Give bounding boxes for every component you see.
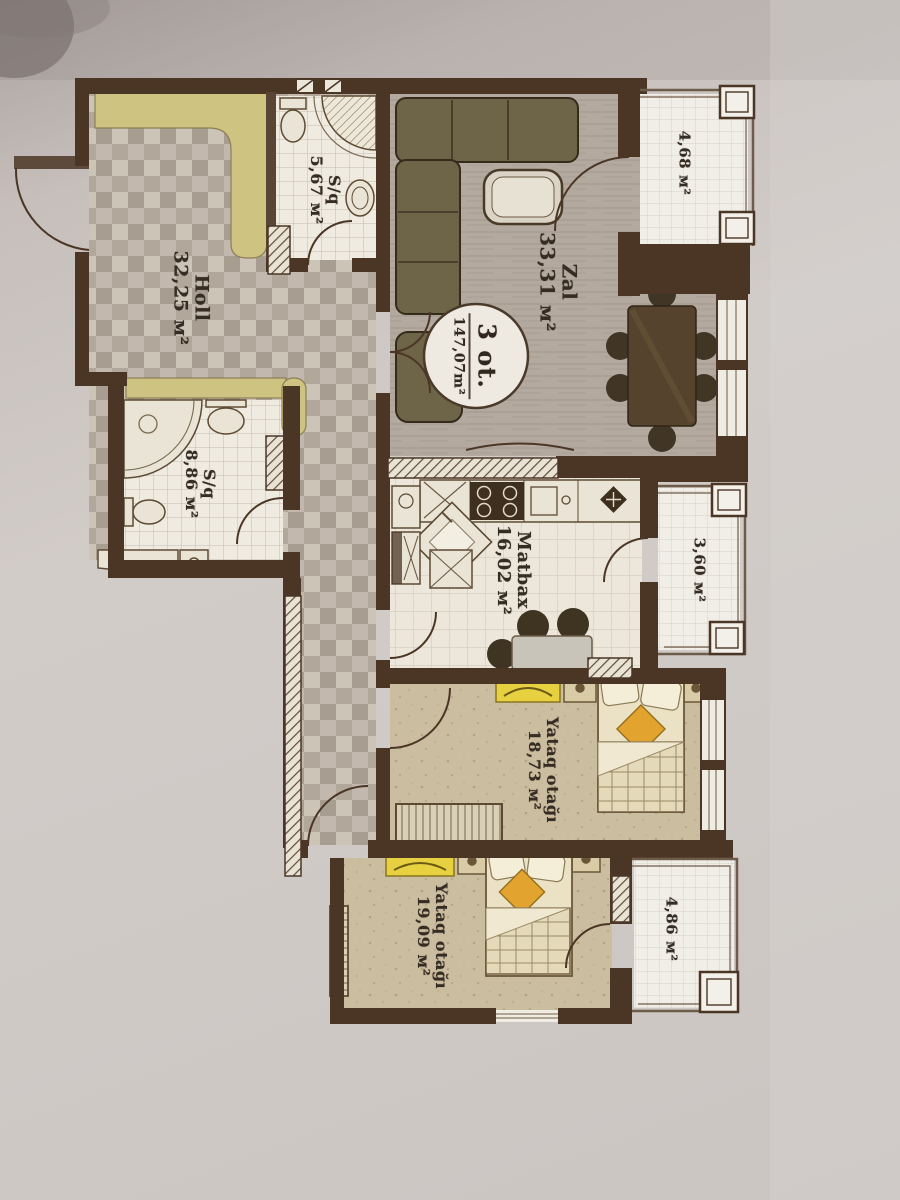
bed [486, 846, 572, 976]
label-sq1: S/q 5,67 м² [307, 156, 343, 225]
room-area: 16,02 м² [493, 525, 513, 615]
balcony-area: 4,68 м² [676, 131, 693, 196]
fridge [392, 532, 420, 584]
stamp-total-area: 147,07m² [451, 313, 469, 399]
sink [206, 400, 246, 434]
room-name: Holl [190, 251, 211, 346]
bedroom2-window [496, 1010, 558, 1022]
hall-closet [126, 378, 286, 398]
room-area: 18,73 м² [525, 717, 543, 823]
entry-door [14, 156, 89, 250]
toilet [124, 498, 165, 526]
label-bedroom2: Yataq otağı 19,09 м² [414, 883, 450, 989]
room-name: Zal [558, 232, 580, 332]
label-zal: Zal 33,31 м² [536, 232, 581, 332]
label-matbax: Matbax 16,02 м² [493, 525, 533, 615]
room-name: Yataq otağı [543, 717, 561, 823]
floor-plan-photo: Zal 33,31 м² S/q 5,67 м² Holl 32,25 м² S… [0, 0, 900, 1200]
label-balcony1: 4,68 м² [676, 131, 693, 196]
room-area: 8,86 м² [182, 450, 200, 519]
left-sink-unit [392, 486, 420, 528]
bed [598, 672, 684, 812]
room-area: 33,31 м² [536, 232, 558, 332]
cabinet-x2 [430, 550, 472, 588]
sink [346, 180, 374, 216]
stove [470, 482, 524, 520]
label-bedroom1: Yataq otağı 18,73 м² [525, 717, 561, 823]
room-area: 19,09 м² [414, 883, 432, 989]
room-name: Matbax [513, 525, 533, 615]
balcony-area: 3,60 м² [691, 538, 708, 603]
stamp-rooms-count: 3 ot. [469, 313, 502, 399]
kitchen-table [512, 636, 592, 670]
room-name: S/q [200, 450, 218, 519]
floor-plan-drawing [0, 0, 900, 1200]
label-area-stamp: 3 ot. 147,07m² [451, 313, 502, 399]
wardrobe [396, 804, 502, 844]
label-balcony3: 4,86 м² [663, 897, 680, 962]
room-name: Yataq otağı [432, 883, 450, 989]
toilet [280, 98, 306, 142]
room-area: 5,67 м² [307, 156, 325, 225]
label-balcony2: 3,60 м² [691, 538, 708, 603]
label-holl: Holl 32,25 м² [169, 251, 212, 346]
label-sq2: S/q 8,86 м² [182, 450, 218, 519]
room-name: S/q [325, 156, 343, 225]
coffee-table [484, 170, 562, 224]
balcony-area: 4,86 м² [663, 897, 680, 962]
room-area: 32,25 м² [169, 251, 190, 346]
